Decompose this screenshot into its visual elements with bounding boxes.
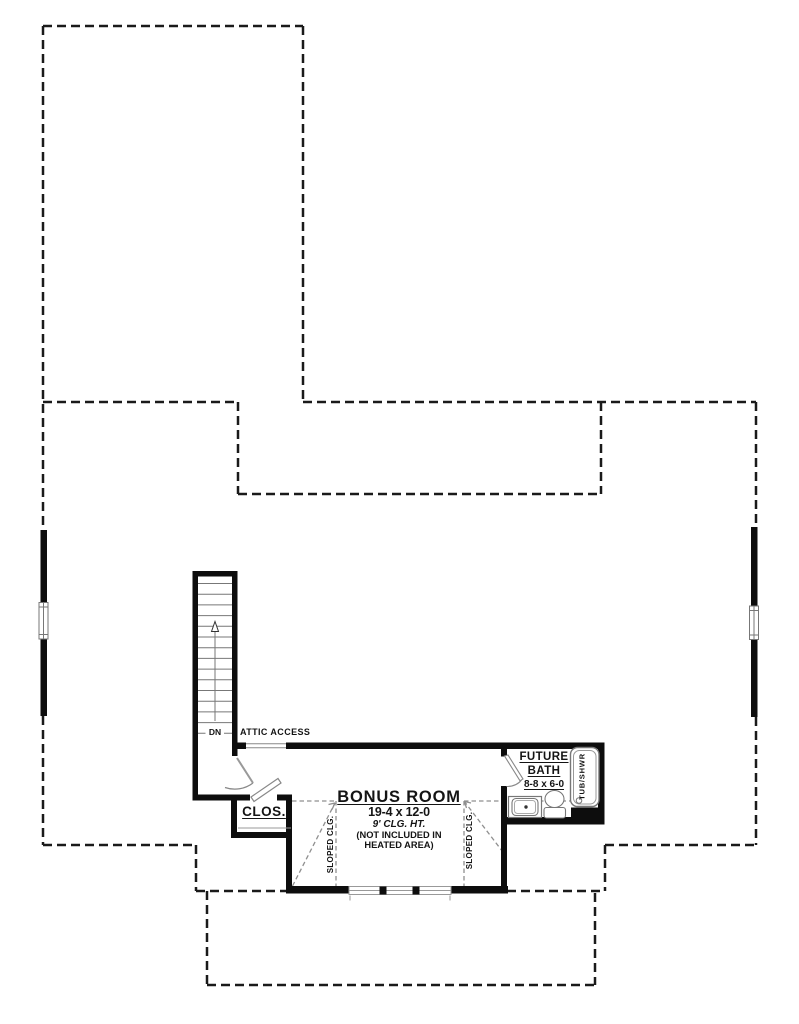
vanity-sink	[509, 797, 542, 818]
closet-label: CLOS.	[224, 805, 304, 819]
dn-label: DN	[205, 728, 225, 737]
toilet	[544, 791, 566, 819]
bonus-room-dimensions: 19-4 x 12-0	[324, 806, 474, 819]
attic-access-opening	[246, 743, 286, 750]
window-right	[750, 606, 759, 640]
stairs	[193, 571, 238, 801]
sloped-ceiling-label-left: SLOPED CLG.	[327, 814, 340, 875]
plan-drawing	[0, 0, 799, 1024]
floor-plan: ATTIC ACCESS DN CLOS. BONUS ROOM 19-4 x …	[0, 0, 799, 1024]
exterior-walls	[41, 527, 758, 717]
bonus-room-ceiling-height: 9' CLG. HT.	[324, 820, 474, 830]
stair-direction-arrow	[212, 622, 219, 722]
future-bath-label-line2: BATH	[504, 766, 584, 778]
tub-shower-label: TUB/SHWR	[579, 751, 592, 801]
bonus-room-note-line1: (NOT INCLUDED IN	[324, 831, 474, 840]
bonus-room-title: BONUS ROOM	[324, 789, 474, 806]
sloped-ceiling-label-right: SLOPED CLG.	[466, 810, 479, 871]
window-left	[39, 603, 48, 640]
future-bath-label-line1: FUTURE	[504, 752, 584, 764]
tub-chase	[571, 808, 604, 819]
future-bath-dimensions: 8-8 x 6-0	[504, 780, 584, 790]
bonus-room-note-line2: HEATED AREA)	[324, 841, 474, 850]
attic-access-label: ATTIC ACCESS	[240, 728, 304, 737]
window-triple-bottom	[349, 887, 451, 901]
